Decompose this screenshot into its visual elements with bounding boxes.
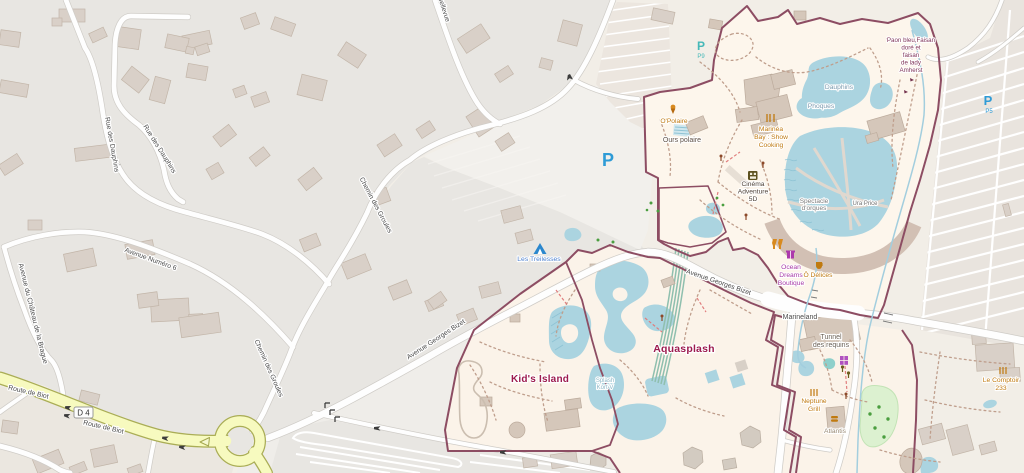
svg-text:Boutique: Boutique <box>778 280 805 287</box>
svg-text:Amherst: Amherst <box>899 67 922 74</box>
svg-text:233: 233 <box>995 385 1006 392</box>
svg-text:faisan: faisan <box>903 52 920 59</box>
svg-text:Ocean: Ocean <box>781 264 801 271</box>
svg-text:Le Comptoir: Le Comptoir <box>983 377 1020 384</box>
svg-text:Marinéa: Marinéa <box>759 126 783 133</box>
svg-text:Grill: Grill <box>808 406 820 413</box>
svg-text:de lady: de lady <box>901 60 922 67</box>
svg-text:P5: P5 <box>985 109 993 115</box>
svg-text:Spectacle: Spectacle <box>800 198 829 205</box>
svg-text:Tunnel: Tunnel <box>820 334 842 341</box>
svg-text:Phoques: Phoques <box>808 103 835 110</box>
svg-text:5D: 5D <box>749 196 758 203</box>
svg-text:Bay : Show: Bay : Show <box>754 134 788 141</box>
svg-text:P: P <box>984 93 993 108</box>
svg-text:Marineland: Marineland <box>783 314 818 321</box>
svg-text:Kid's Island: Kid's Island <box>511 374 569 385</box>
svg-text:P: P <box>602 150 614 170</box>
svg-text:Ours polaire: Ours polaire <box>663 137 701 144</box>
svg-text:O'Polaire: O'Polaire <box>660 118 688 125</box>
svg-text:Kort V: Kort V <box>597 385 614 391</box>
svg-text:Dauphins: Dauphins <box>825 84 854 91</box>
svg-text:P9: P9 <box>697 54 705 60</box>
svg-text:Ô Délices: Ô Délices <box>804 270 834 279</box>
svg-text:Paon bleu,Faisan: Paon bleu,Faisan <box>887 37 936 44</box>
svg-text:doré et: doré et <box>901 45 921 52</box>
svg-text:Cooking: Cooking <box>759 142 784 149</box>
svg-text:D 4: D 4 <box>77 409 90 418</box>
svg-text:Dreams: Dreams <box>779 272 803 279</box>
svg-text:des requins: des requins <box>813 342 850 349</box>
svg-text:Adventure: Adventure <box>738 189 769 196</box>
svg-text:d'orques: d'orques <box>802 205 827 212</box>
svg-text:Splash: Splash <box>596 378 614 384</box>
svg-text:Neptune: Neptune <box>801 398 827 405</box>
svg-text:P: P <box>697 39 705 53</box>
svg-text:Aquasplash: Aquasplash <box>653 343 715 355</box>
svg-text:Les Treilesses: Les Treilesses <box>517 256 561 263</box>
svg-text:Atlantis: Atlantis <box>824 428 847 435</box>
svg-text:Ura Price: Ura Price <box>852 201 878 207</box>
svg-text:Cinéma: Cinéma <box>741 181 764 188</box>
